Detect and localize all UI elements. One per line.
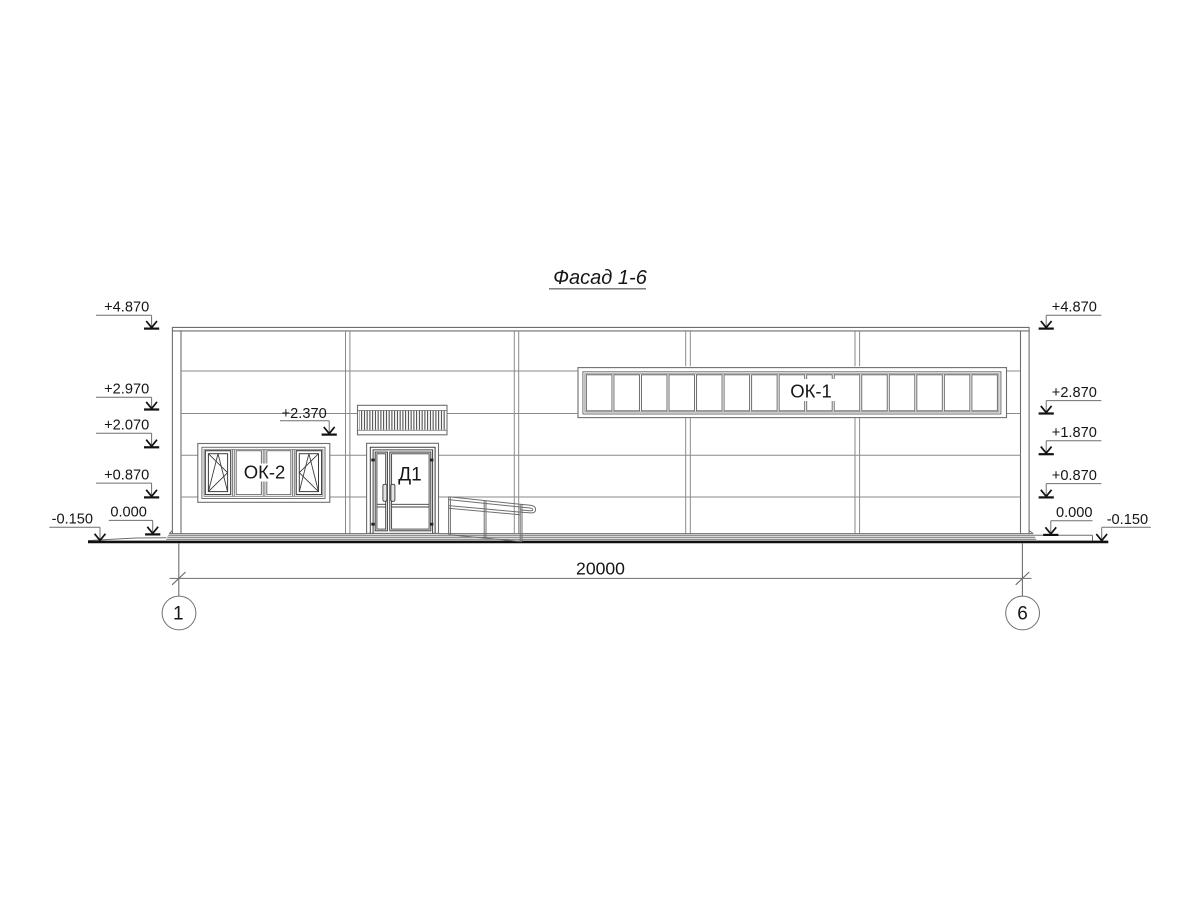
svg-text:-0.150: -0.150 (52, 512, 93, 528)
svg-text:Фасад 1-6: Фасад 1-6 (553, 267, 648, 289)
svg-text:ОК-1: ОК-1 (790, 381, 832, 402)
svg-text:+2.070: +2.070 (104, 418, 149, 434)
svg-text:+0.870: +0.870 (104, 467, 149, 483)
svg-text:20000: 20000 (576, 559, 625, 579)
svg-text:+1.870: +1.870 (1052, 425, 1097, 441)
svg-text:+2.870: +2.870 (1052, 385, 1097, 401)
svg-text:ОК-2: ОК-2 (244, 462, 286, 483)
svg-text:+4.870: +4.870 (104, 300, 149, 316)
svg-text:Д1: Д1 (398, 465, 421, 486)
svg-text:1: 1 (173, 604, 184, 625)
svg-text:+4.870: +4.870 (1052, 300, 1097, 316)
svg-text:+2.370: +2.370 (282, 406, 327, 422)
svg-text:+2.970: +2.970 (104, 382, 149, 398)
svg-text:-0.150: -0.150 (1107, 512, 1148, 528)
svg-text:0.000: 0.000 (110, 505, 147, 521)
svg-text:+0.870: +0.870 (1052, 468, 1097, 484)
svg-text:0.000: 0.000 (1056, 505, 1093, 521)
svg-text:6: 6 (1017, 604, 1028, 625)
